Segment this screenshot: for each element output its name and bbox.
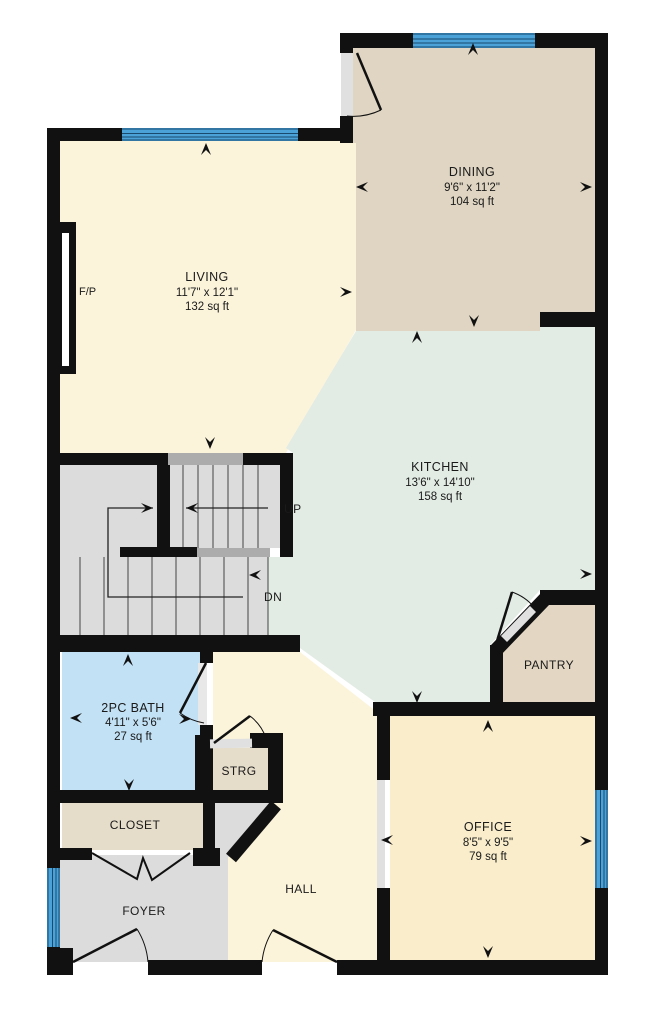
closet-label: CLOSET	[110, 818, 161, 832]
window-living-top	[122, 128, 298, 141]
strg-label: STRG	[222, 764, 257, 778]
up-label: UP	[284, 502, 301, 516]
pantry-label: PANTRY	[524, 658, 574, 672]
living-name: LIVING	[185, 270, 228, 284]
doorway-office	[377, 780, 385, 888]
dining-area: 104 sq ft	[450, 196, 495, 208]
window-foyer-left	[47, 868, 60, 947]
hall-label: HALL	[285, 882, 317, 896]
window-office-right	[595, 790, 608, 888]
dining-dims: 9'6" x 11'2"	[444, 182, 500, 194]
fireplace-label: F/P	[79, 286, 96, 298]
room-label-dining: DINING 9'6" x 11'2" 104 sq ft	[444, 165, 500, 208]
fireplace	[60, 222, 76, 374]
stairs-fill-lower	[60, 548, 268, 635]
kitchen-name: KITCHEN	[411, 460, 469, 474]
stairs-landing-mid	[197, 548, 270, 557]
kitchen-dims: 13'6" x 14'10"	[405, 477, 474, 489]
stairs-landing-top	[168, 453, 243, 465]
office-name: OFFICE	[464, 820, 512, 834]
foyer-label: FOYER	[122, 904, 165, 918]
office-dims: 8'5" x 9'5"	[463, 837, 513, 849]
office-area: 79 sq ft	[469, 851, 508, 863]
dining-name: DINING	[449, 165, 495, 179]
living-area: 132 sq ft	[185, 301, 230, 313]
kitchen-area: 158 sq ft	[418, 491, 463, 503]
room-label-office: OFFICE 8'5" x 9'5" 79 sq ft	[463, 820, 513, 863]
bath-area: 27 sq ft	[114, 731, 153, 743]
floor-plan-page: LIVING 11'7" x 12'1" 132 sq ft DINING 9'…	[0, 0, 662, 1024]
down-label: DN	[264, 590, 282, 604]
living-dims: 11'7" x 12'1"	[176, 287, 238, 299]
bath-dims: 4'11" x 5'6"	[105, 717, 161, 729]
floor-plan: LIVING 11'7" x 12'1" 132 sq ft DINING 9'…	[0, 0, 662, 1024]
bath-name: 2PC BATH	[101, 701, 164, 715]
